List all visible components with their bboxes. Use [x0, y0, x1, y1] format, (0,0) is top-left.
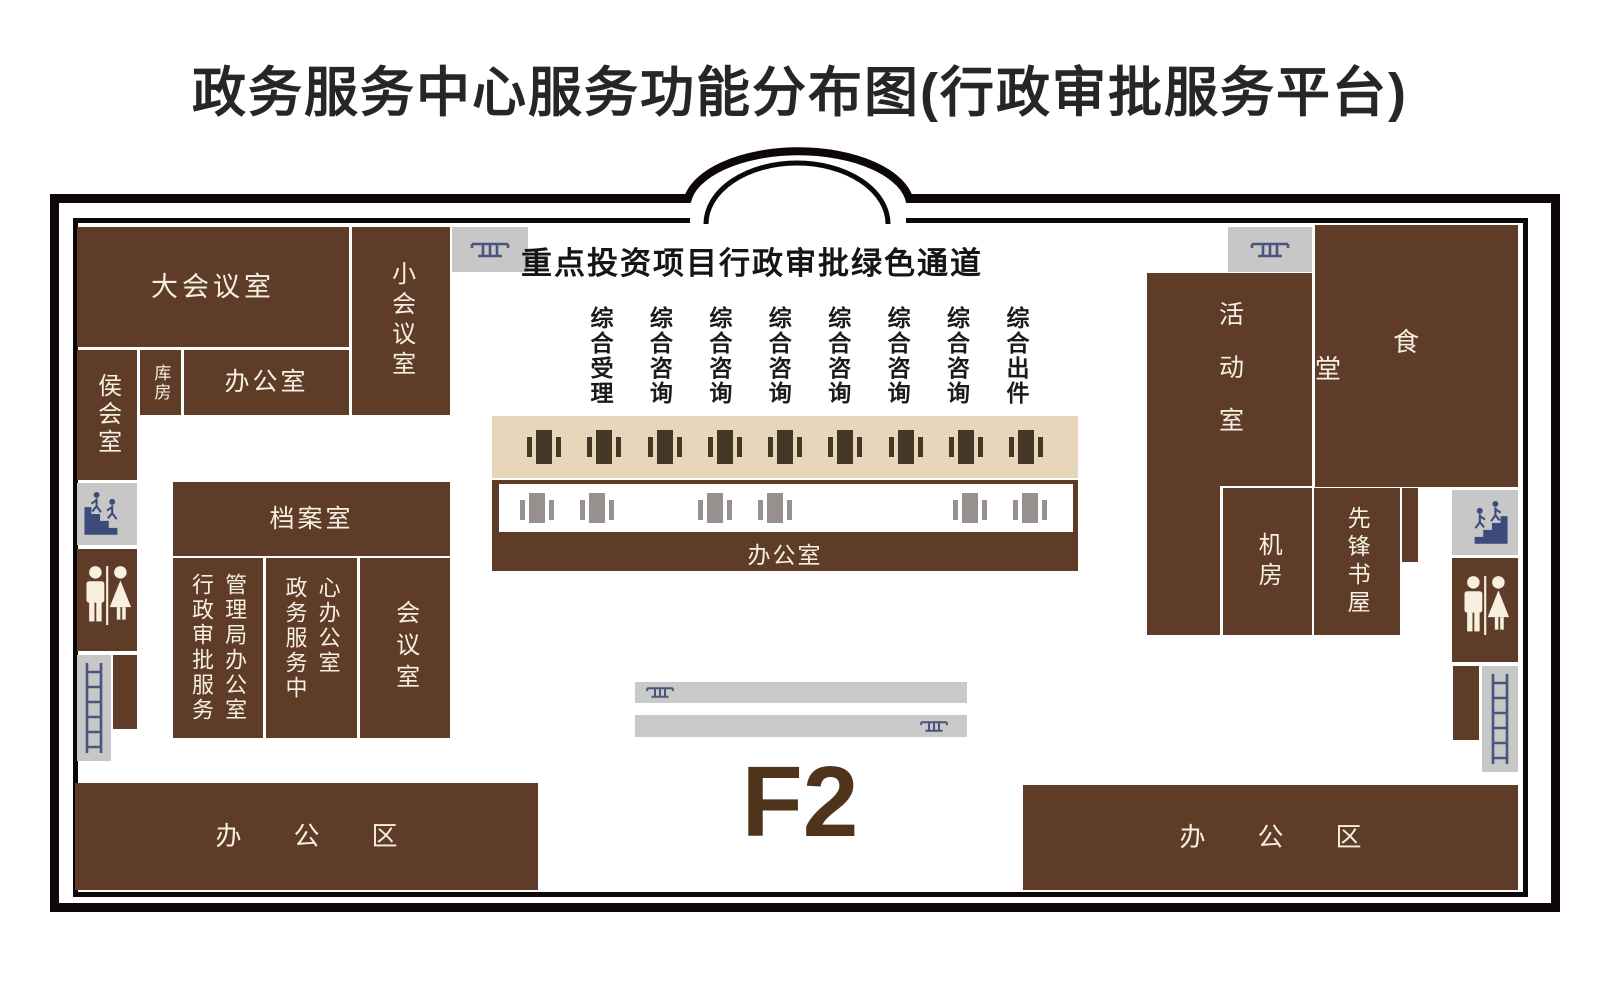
escalator-icon: [1249, 240, 1291, 260]
floor-label: F2: [650, 745, 950, 860]
room-label: 会议室: [392, 600, 417, 696]
room-label: 小会议室: [388, 261, 413, 381]
room-service-center-office: 政务服务中 心办公室: [266, 558, 357, 738]
escalator-strip-lower: [635, 715, 967, 737]
room-block-left: [113, 655, 137, 729]
room-label: 档案室: [269, 506, 353, 532]
room-office-area-left: 办公区: [75, 783, 538, 890]
stairs-box-left: [77, 483, 137, 545]
counter-back-block: 办公室: [492, 480, 1078, 571]
desk-icon: [717, 430, 733, 464]
room-office-area-right: 办公区: [1023, 785, 1518, 890]
counter-office-label: 办公室: [492, 536, 1078, 570]
counter-labels: 综合受理 综合咨询 综合咨询 综合咨询 综合咨询 综合咨询 综合咨询 综合出件: [583, 306, 1033, 410]
desk-icon: [536, 430, 552, 464]
room-label-col-right: 管理局办公室: [223, 573, 246, 723]
desk-icon: [837, 430, 853, 464]
back-office-box: [829, 484, 1073, 532]
entrance-arch-icon: [668, 140, 918, 228]
room-waiting: 侯会室: [77, 350, 137, 480]
stairs-icon: [80, 488, 134, 540]
toilet-box-left: [77, 549, 137, 651]
room-label: 库房: [152, 364, 170, 402]
room-label: 侯会室: [94, 373, 119, 457]
toilet-icon: [1460, 570, 1510, 650]
room-approval-bureau-office: 行政审批服务 管理局办公室: [173, 558, 263, 738]
room-small-meeting: 小会议室: [352, 227, 450, 415]
room-block-right: [1453, 666, 1479, 740]
counter-label: 综合咨询: [821, 306, 855, 410]
room-block-right-strip: [1402, 488, 1418, 562]
room-label: 食堂: [1315, 329, 1518, 384]
counter-label: 综合出件: [999, 306, 1033, 410]
desk-icon: [777, 430, 793, 464]
desk-icon: [707, 493, 723, 523]
room-bookstore: 先锋书屋: [1314, 488, 1400, 635]
room-storage: 库房: [140, 350, 181, 415]
ladder-icon: [1487, 671, 1513, 767]
stairs-icon: [1458, 497, 1512, 549]
room-activity-label: 活动室: [1147, 300, 1312, 460]
counter-label: 综合咨询: [761, 306, 795, 410]
room-archives: 档案室: [173, 482, 450, 556]
room-office-nw: 办公室: [184, 350, 349, 415]
room-activity-lower: [1147, 486, 1220, 635]
escalator-icon: [645, 685, 675, 700]
room-label: 办公室: [224, 369, 308, 395]
desk-icon: [1022, 493, 1038, 523]
desk-icon: [1018, 430, 1034, 464]
room-label: 机房: [1255, 532, 1280, 592]
counter-label: 综合咨询: [940, 306, 974, 410]
stairs-box-right: [1452, 490, 1518, 555]
ladder-icon: [81, 660, 107, 756]
desk-icon: [962, 493, 978, 523]
service-counter-strip: [492, 416, 1078, 478]
room-label: 大会议室: [151, 273, 275, 301]
toilet-box-right: [1452, 558, 1518, 662]
room-label: 办公区: [1127, 824, 1413, 851]
counter-label: 综合咨询: [642, 306, 676, 410]
desk-icon: [958, 430, 974, 464]
room-label-col-right: 心办公室: [317, 576, 340, 676]
room-canteen: 食堂: [1315, 225, 1518, 487]
room-label: 先锋书屋: [1345, 506, 1369, 618]
counter-label: 综合咨询: [702, 306, 736, 410]
page-title: 政务服务中心服务功能分布图(行政审批服务平台): [0, 48, 1600, 127]
room-label-col-left: 政务服务中: [283, 576, 306, 701]
counter-label: 综合咨询: [880, 306, 914, 410]
toilet-icon: [82, 560, 132, 640]
escalator-box-ne: [1228, 227, 1312, 272]
room-meeting: 会议室: [360, 558, 450, 738]
ladder-box-right: [1482, 666, 1518, 772]
room-large-meeting: 大会议室: [77, 227, 349, 347]
desk-icon: [596, 430, 612, 464]
escalator-strip-upper: [635, 682, 967, 703]
desk-icon: [767, 493, 783, 523]
back-office-box: [499, 484, 687, 532]
desk-icon: [898, 430, 914, 464]
desk-icon: [589, 493, 605, 523]
room-label-col-left: 行政审批服务: [190, 573, 213, 723]
escalator-icon: [919, 719, 949, 734]
counter-label: 综合受理: [583, 306, 617, 410]
floor-plan: 政务服务中心服务功能分布图(行政审批服务平台) 大会议室 小会议室 侯会室 库房…: [0, 0, 1600, 1000]
room-label: 办公区: [163, 823, 449, 850]
desk-icon: [529, 493, 545, 523]
ladder-box-left: [77, 655, 111, 761]
desk-icon: [657, 430, 673, 464]
green-channel-heading: 重点投资项目行政审批绿色通道: [502, 238, 1002, 283]
room-machine: 机房: [1223, 488, 1312, 635]
